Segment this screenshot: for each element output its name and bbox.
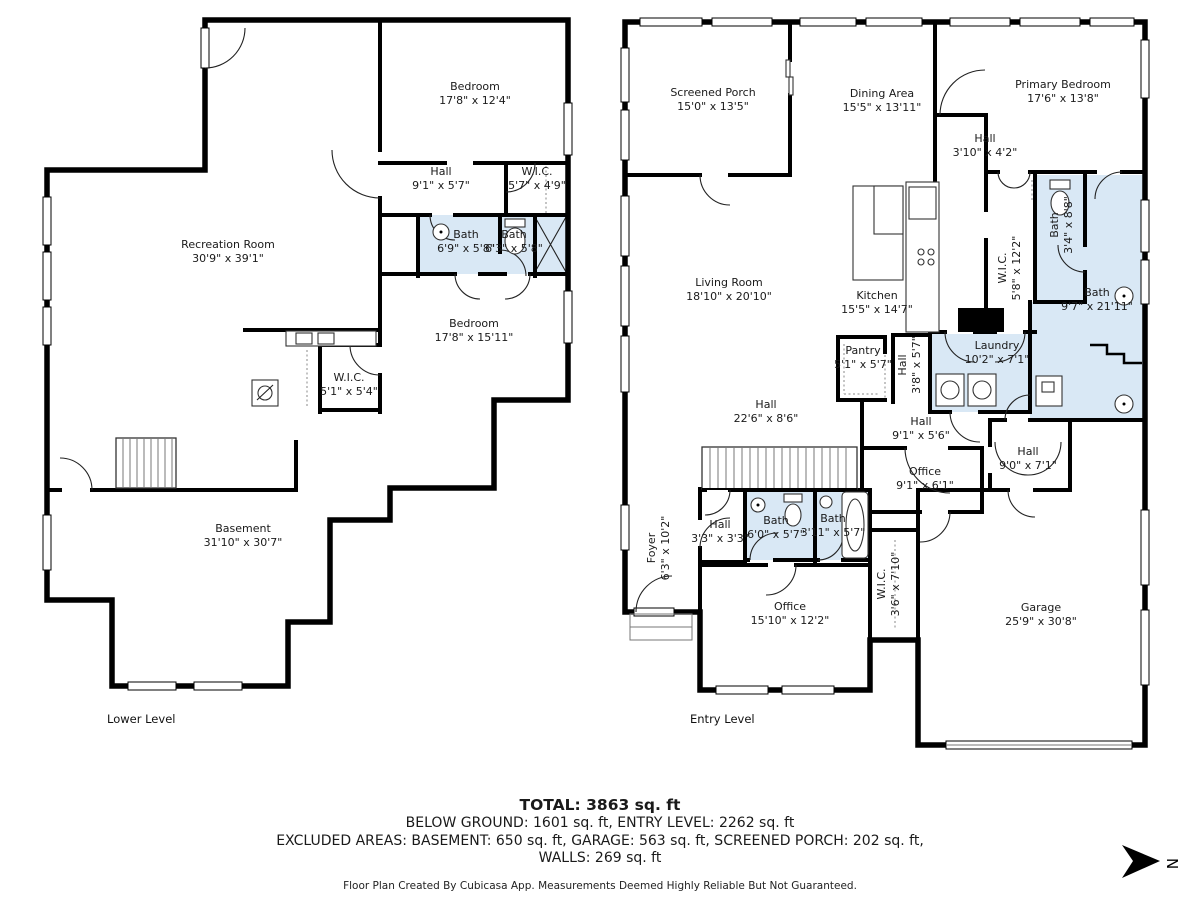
below-ground-text: BELOW GROUND: 1601 sq. ft, ENTRY LEVEL: … — [0, 815, 1200, 832]
excluded-areas-text: EXCLUDED AREAS: BASEMENT: 650 sq. ft, GA… — [0, 833, 1200, 850]
floorplan-canvas: N Lower LevelBedroom17'8" x 12'4"Hall9'1… — [0, 0, 1200, 900]
entry-level-plan — [621, 18, 1149, 749]
lower-level-plan — [43, 20, 572, 690]
total-area-text: TOTAL: 3863 sq. ft — [0, 796, 1200, 815]
floorplan-drawing: N — [0, 0, 1200, 900]
summary-block: TOTAL: 3863 sq. ft BELOW GROUND: 1601 sq… — [0, 796, 1200, 892]
disclaimer-text: Floor Plan Created By Cubicasa App. Meas… — [0, 880, 1200, 892]
walls-area-text: WALLS: 269 sq. ft — [0, 850, 1200, 867]
